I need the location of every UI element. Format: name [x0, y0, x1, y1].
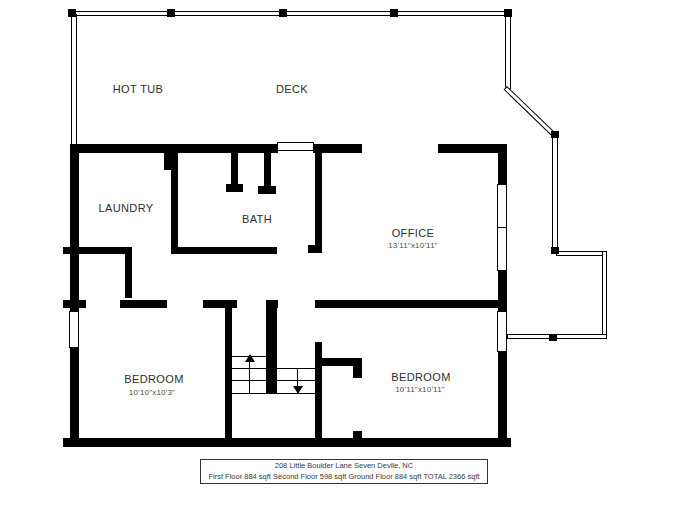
railing-post — [551, 247, 559, 254]
deck-rail-diagonal — [504, 86, 556, 136]
deck-label: DECK — [252, 83, 332, 95]
bath-label: BATH — [217, 213, 297, 225]
shower-wall-right — [264, 150, 271, 188]
stair-tread — [232, 393, 266, 394]
railing-post — [551, 131, 559, 138]
right-bedroom-dimensions: 10'11"x10'11" — [370, 385, 470, 394]
railing-post — [504, 9, 512, 17]
shower-wall-left-flange — [226, 184, 243, 192]
balcony-rail-bottom — [507, 334, 607, 339]
railing-post — [549, 334, 557, 341]
exterior-wall-bottom — [63, 438, 511, 447]
stairs-up-arrow-icon — [245, 354, 255, 362]
right-closet-stub-upper — [353, 358, 362, 378]
exterior-wall-left-lower — [70, 348, 79, 447]
office-window-upper — [497, 184, 507, 228]
laundry-bath-wall — [171, 168, 178, 254]
areas-line: First Floor 884 sqft Second Floor 598 sq… — [201, 472, 487, 483]
hot-tub-label: HOT TUB — [98, 83, 178, 95]
office-window-lower — [497, 227, 507, 271]
deck-rail-right-upper — [505, 14, 511, 89]
left-bedroom-window — [69, 311, 79, 348]
balcony-rail-top — [556, 251, 607, 256]
exterior-wall-right-upper — [498, 144, 507, 184]
laundry-bottom-wall — [63, 247, 132, 254]
right-closet-stub-lower — [353, 431, 362, 440]
stairs-up-arrow-shaft — [249, 362, 250, 393]
left-closet-wall — [125, 253, 132, 298]
laundry-bath-wall-block — [164, 147, 178, 170]
hall-bottom-wall-c — [203, 300, 237, 308]
address-line: 208 Little Boulder Lane Seven Devile, NC — [201, 461, 487, 472]
hall-bottom-wall-a — [63, 300, 86, 308]
railing-post — [167, 9, 175, 17]
railing-post — [68, 9, 76, 17]
railing-post — [279, 9, 287, 17]
office-west-wall-foot — [308, 245, 322, 253]
floor-plan: HOT TUB DECK LAUNDRY BATH OFFICE 13'11"x… — [0, 0, 683, 512]
hall-bottom-wall-b — [120, 300, 167, 308]
laundry-label: LAUNDRY — [86, 202, 166, 214]
bath-bottom-wall — [171, 247, 277, 254]
stairwell-west-wall — [225, 308, 232, 440]
office-west-wall — [315, 147, 322, 247]
deck-rail-right-mid — [552, 137, 558, 250]
railing-post — [390, 9, 398, 17]
shower-wall-right-flange — [258, 186, 276, 194]
office-label: OFFICE — [373, 227, 453, 239]
stair-tread — [277, 380, 315, 381]
bath-window — [277, 142, 314, 151]
right-bedroom-top-wall — [315, 300, 507, 308]
left-bedroom-label: BEDROOM — [114, 373, 194, 385]
shower-wall-left — [231, 150, 238, 186]
exterior-wall-top-right — [438, 144, 507, 153]
hall-bottom-wall-d — [266, 300, 278, 308]
balcony-rail-right — [602, 251, 607, 339]
address-info-box: 208 Little Boulder Lane Seven Devile, NC… — [200, 459, 488, 484]
left-bedroom-dimensions: 10'10"x10'3" — [102, 388, 202, 397]
stairs-down-arrow-shaft — [297, 368, 298, 387]
right-bedroom-label: BEDROOM — [381, 371, 461, 383]
deck-rail-top — [71, 11, 512, 16]
deck-rail-left — [71, 14, 77, 145]
landing-east-wall — [315, 342, 322, 440]
exterior-wall-right-lower — [498, 352, 507, 447]
stair-divider-wall — [266, 308, 277, 394]
stair-tread — [277, 368, 315, 369]
exterior-wall-left-upper — [70, 144, 79, 311]
office-dimensions: 13'11"x10'11" — [363, 241, 463, 250]
right-bedroom-window — [497, 311, 507, 352]
stairs-down-arrow-icon — [293, 386, 303, 394]
